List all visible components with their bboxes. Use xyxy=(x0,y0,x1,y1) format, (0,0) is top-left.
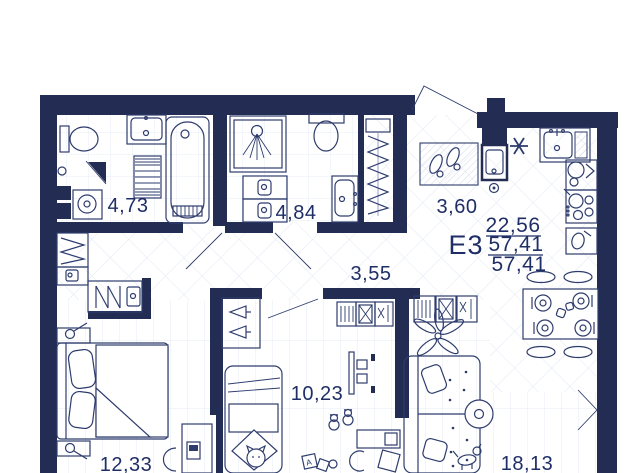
wall-bedroom-kids xyxy=(210,297,223,415)
corridor-area-label: 3,55 xyxy=(351,263,392,285)
wall-bath-south-c xyxy=(317,222,407,233)
floor-plan-drawing: А xyxy=(0,0,640,473)
wall-kids-living xyxy=(395,288,409,418)
kids-room-area-label: 10,23 xyxy=(291,383,344,405)
wall-entry-stub xyxy=(487,98,505,114)
entry-hall-area-label: 3,60 xyxy=(437,196,478,218)
wall-closet-divider xyxy=(358,112,364,226)
wall-bath-divider xyxy=(213,95,227,226)
stool xyxy=(564,272,592,283)
bath-cabinet-1 xyxy=(57,186,71,200)
entry-door-swing xyxy=(412,86,478,114)
pillow xyxy=(68,391,96,430)
entry-hall xyxy=(420,143,478,185)
coffee-table xyxy=(465,400,493,428)
bedroom-area-label: 12,33 xyxy=(100,454,153,473)
kids-blanket xyxy=(229,404,278,432)
drainboard xyxy=(575,132,587,158)
total-area-with-balcony-value: 57,41 xyxy=(491,253,546,276)
bath-cabinet-2 xyxy=(57,203,71,219)
living-room-area-label: 18,13 xyxy=(501,453,554,473)
wall-left xyxy=(40,95,57,473)
floor-plan: А xyxy=(0,0,640,473)
wall-bedroom-kids-thin xyxy=(216,415,223,473)
doormat xyxy=(420,143,478,185)
bathroom-area-label: 4,73 xyxy=(108,195,149,217)
shower-room-area-label: 4,84 xyxy=(276,202,317,224)
unit-label: Е3 xyxy=(448,230,483,260)
wall-niche-v xyxy=(142,278,151,319)
towel-radiator xyxy=(134,156,161,198)
stool xyxy=(564,347,592,358)
wall-bath-south-a xyxy=(57,222,183,233)
wall-right xyxy=(597,112,617,473)
wall-bath-south-b xyxy=(225,222,273,233)
wall-top-kitchen xyxy=(477,112,618,128)
pillow xyxy=(67,349,96,390)
wall-closet-hall xyxy=(393,112,407,226)
stool xyxy=(527,347,555,358)
